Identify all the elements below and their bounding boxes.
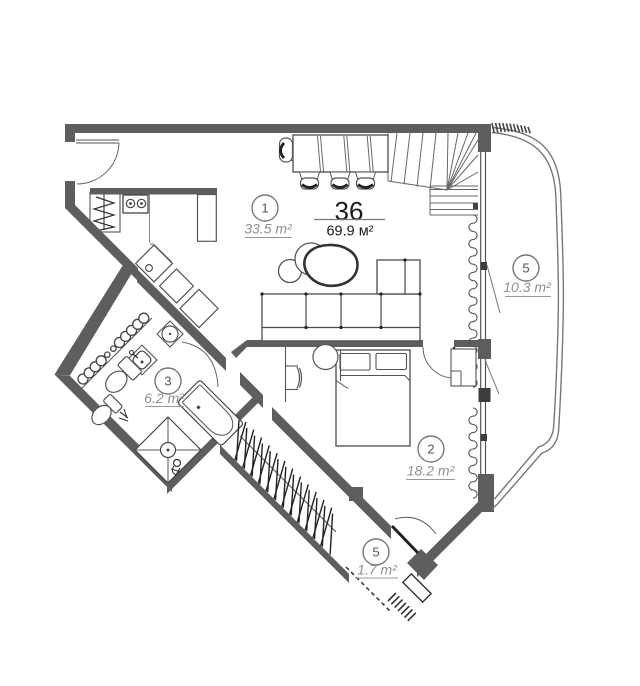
svg-text:3: 3	[164, 374, 171, 389]
svg-text:2: 2	[427, 442, 434, 457]
svg-text:6.2 m²: 6.2 m²	[144, 390, 185, 406]
svg-text:1.7 m²: 1.7 m²	[357, 562, 398, 578]
svg-text:18.2 m²: 18.2 m²	[407, 463, 456, 479]
svg-text:36: 36	[335, 196, 364, 226]
svg-text:5: 5	[522, 261, 529, 276]
svg-text:5: 5	[372, 545, 379, 560]
svg-text:69.9 м²: 69.9 м²	[326, 224, 373, 240]
svg-text:1: 1	[261, 201, 268, 216]
svg-text:10.3 m²: 10.3 m²	[503, 279, 552, 295]
svg-text:33.5 m²: 33.5 m²	[244, 221, 293, 237]
